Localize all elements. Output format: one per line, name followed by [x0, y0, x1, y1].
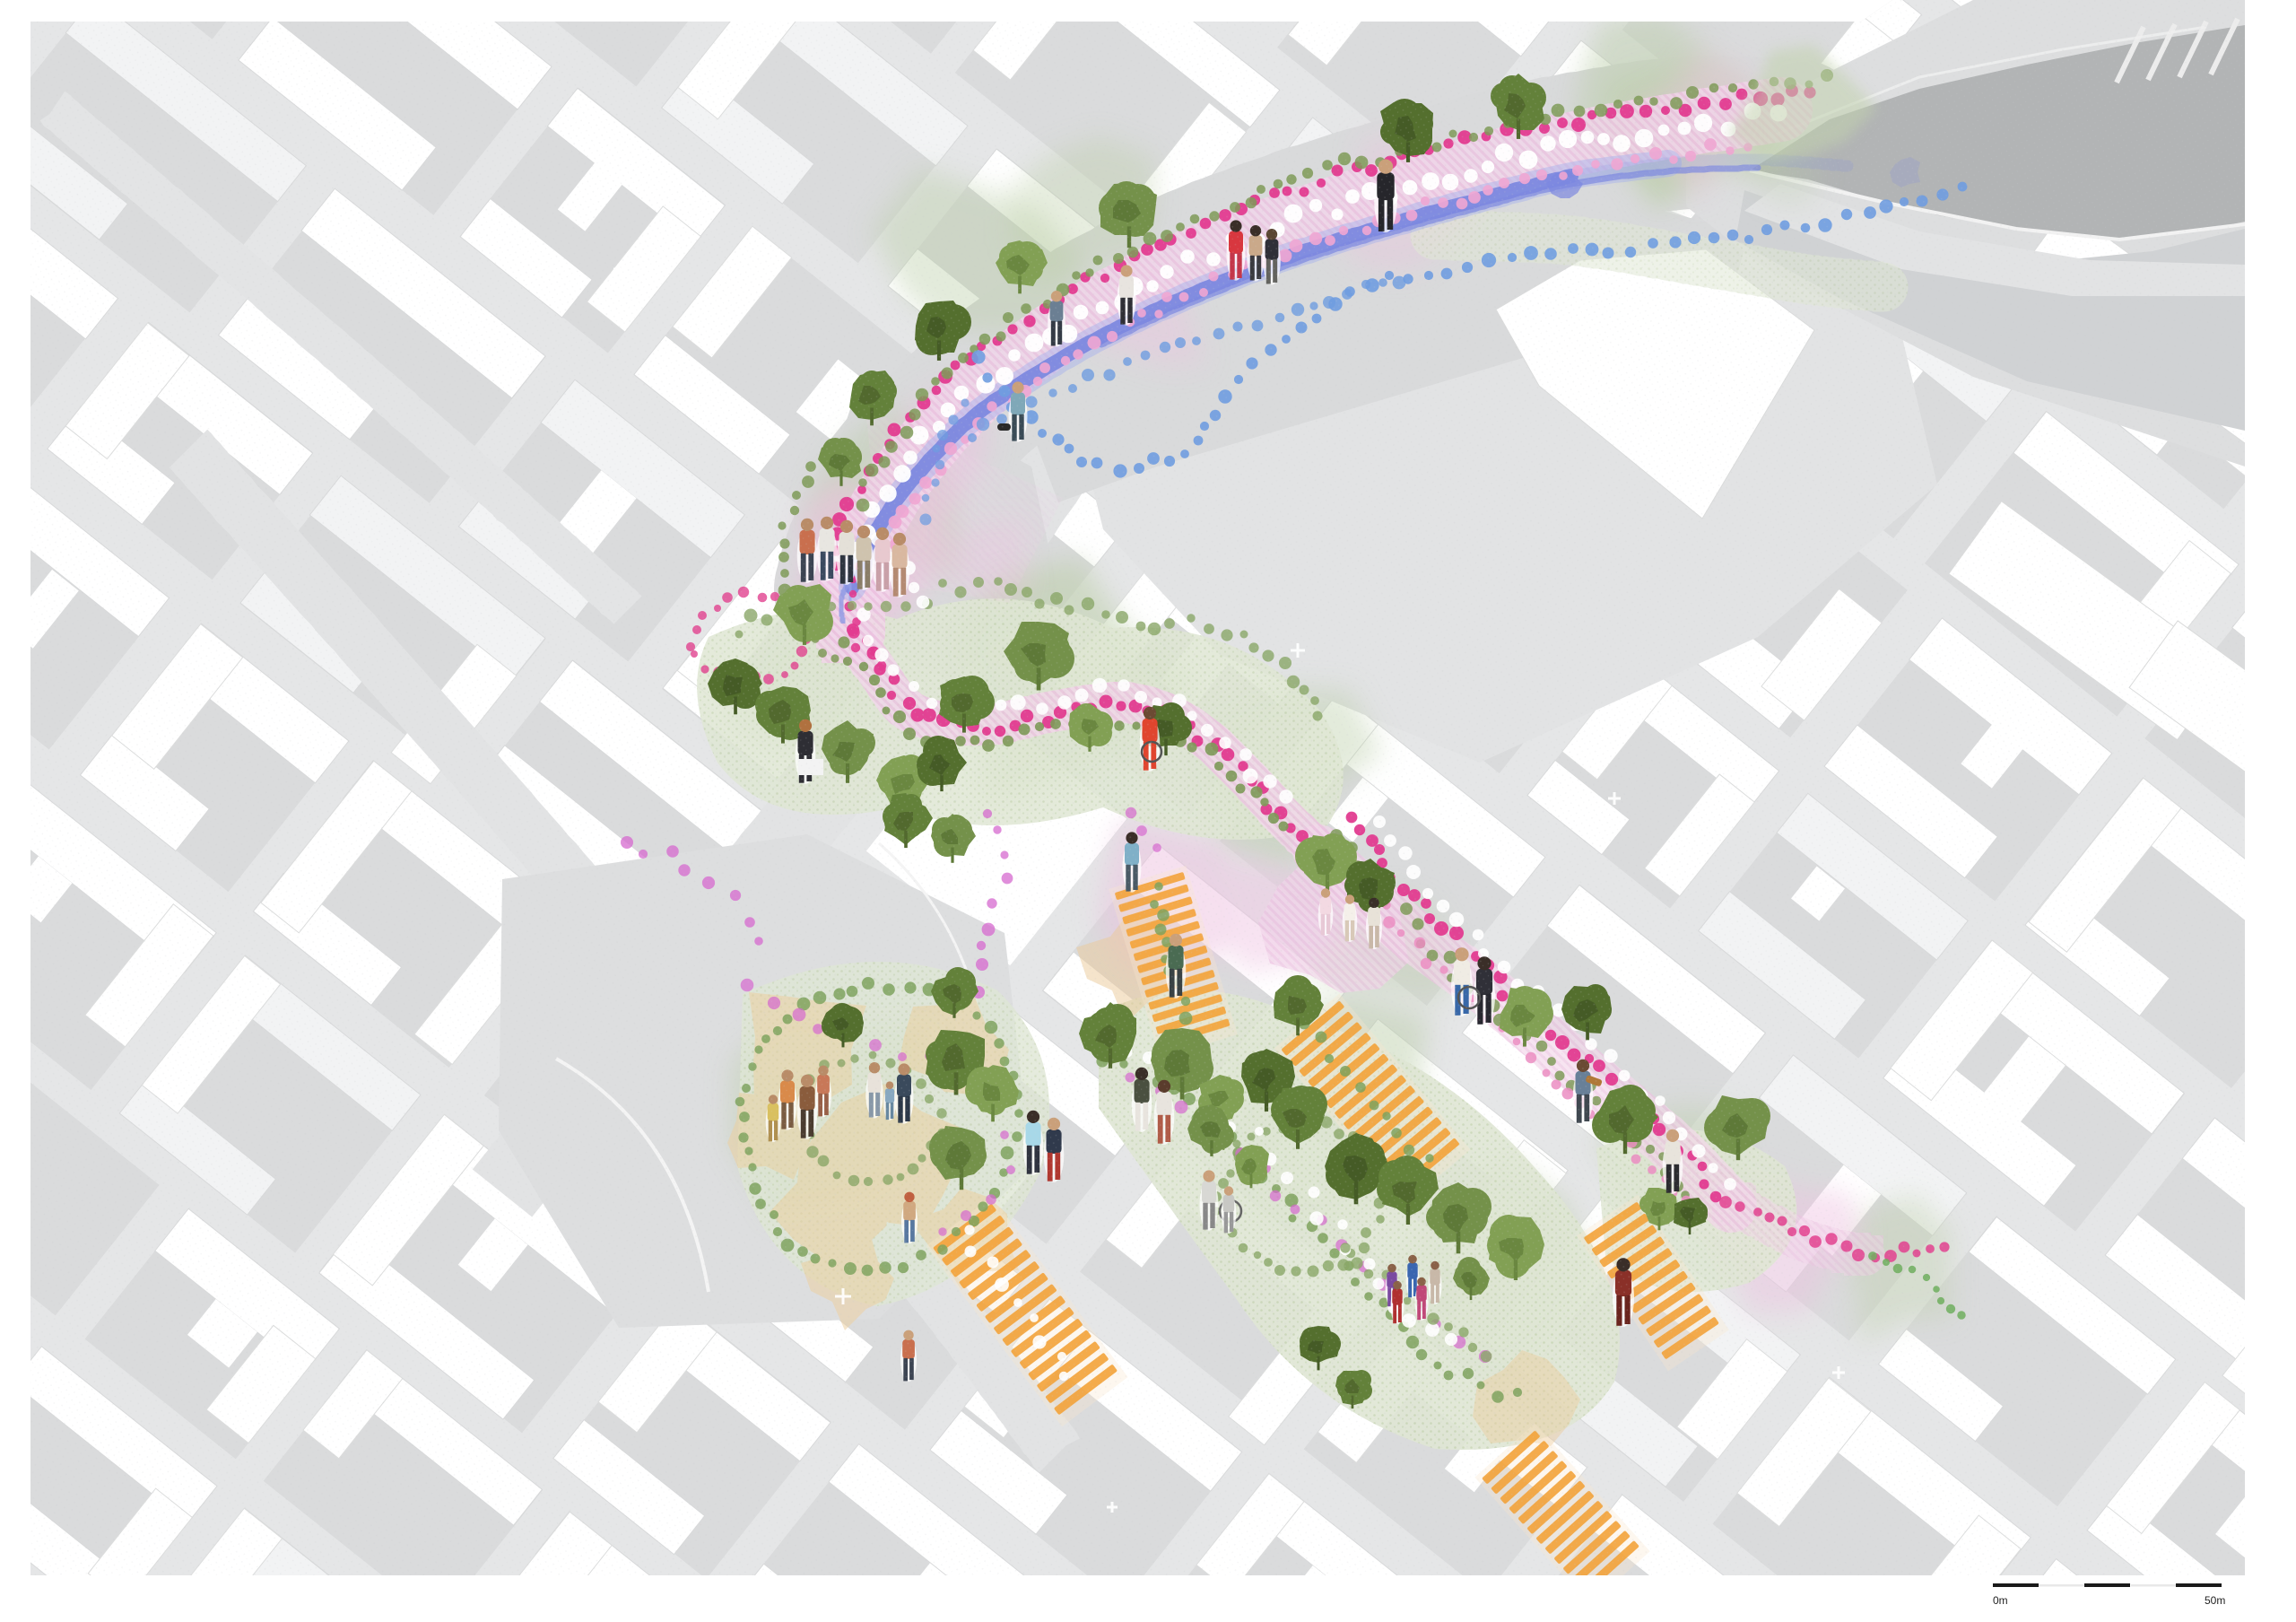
svg-text:50m: 50m — [2205, 1594, 2225, 1607]
svg-text:0m: 0m — [1993, 1594, 2008, 1607]
